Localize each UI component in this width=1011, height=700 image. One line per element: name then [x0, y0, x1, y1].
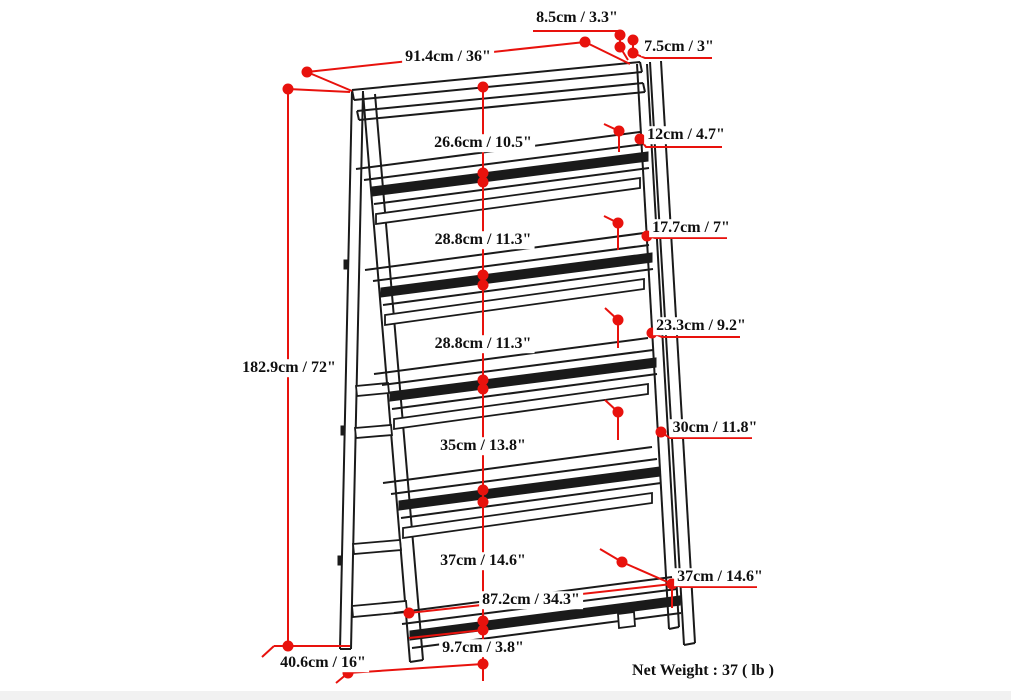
dim-shelf-spacing-1: 26.6cm / 10.5" — [431, 134, 535, 152]
shelf-4 — [383, 447, 661, 538]
dim-shelf-depth-5: 37cm / 14.6" — [674, 568, 766, 586]
dim-shelf-spacing-2: 28.8cm / 11.3" — [432, 231, 535, 249]
dim-shelf-depth-1: 12cm / 4.7" — [644, 126, 728, 144]
dim-shelf-depth-3: 23.3cm / 9.2" — [653, 317, 749, 335]
dim-top-back-depth: 8.5cm / 3.3" — [533, 9, 621, 27]
side-rung — [353, 540, 401, 554]
dim-overall-width: 91.4cm / 36" — [402, 48, 494, 66]
side-rung — [352, 601, 407, 617]
dim-bottom-shelf-width: 87.2cm / 34.3" — [479, 591, 583, 609]
dim-shelf-spacing-4: 35cm / 13.8" — [437, 437, 529, 455]
dim-shelf-depth-4: 30cm / 11.8" — [670, 419, 761, 437]
side-rung — [355, 425, 392, 438]
net-weight-label: Net Weight : 37 ( lb ) — [629, 662, 777, 680]
dim-shelf-depth-2: 17.7cm / 7" — [649, 219, 733, 237]
dimension-diagram: 91.4cm / 36" 8.5cm / 3.3" 7.5cm / 3" 182… — [0, 0, 1011, 700]
shelf-foot — [618, 612, 635, 628]
page-bottom-strip — [0, 691, 1011, 700]
dim-top-leg-width: 7.5cm / 3" — [641, 38, 717, 56]
dim-overall-height: 182.9cm / 72" — [239, 359, 339, 377]
dim-overall-depth: 40.6cm / 16" — [277, 654, 369, 672]
dim-shelf-spacing-3: 28.8cm / 11.3" — [432, 335, 535, 353]
dim-shelf-spacing-5: 37cm / 14.6" — [437, 552, 529, 570]
dim-foot-height: 9.7cm / 3.8" — [439, 639, 527, 657]
